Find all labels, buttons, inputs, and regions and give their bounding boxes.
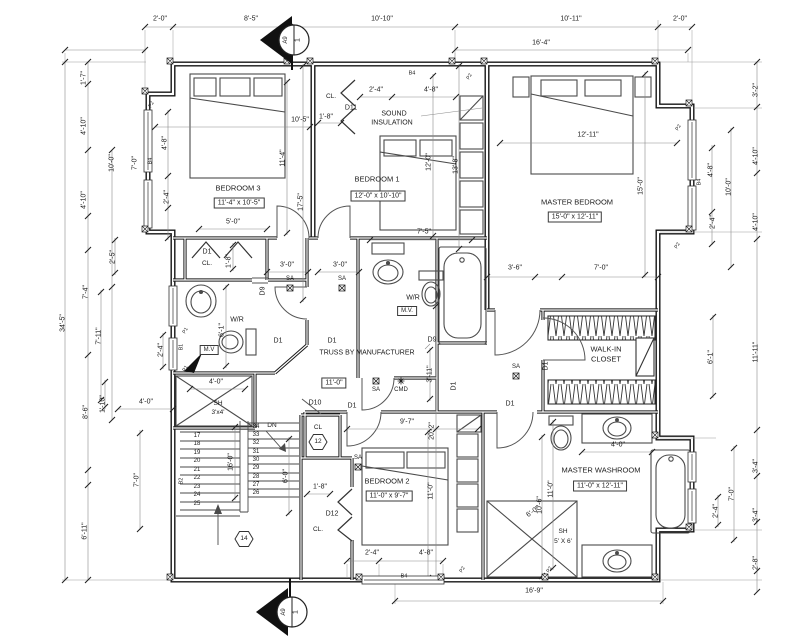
plan-label: 1'-8" — [319, 114, 333, 121]
plan-label: 17 — [194, 433, 201, 439]
plan-label: 4'-10" — [81, 117, 88, 135]
plan-label: 3'-0" — [333, 262, 347, 269]
sink-wr-left — [186, 285, 216, 317]
plan-label: 4'-10" — [753, 147, 760, 165]
sink-wr-center — [372, 243, 404, 284]
plan-label: D1 — [274, 338, 283, 345]
plan-label: 8'-6" — [83, 405, 90, 419]
plan-label: 24 — [194, 492, 201, 498]
plan-label: 7'-0" — [132, 156, 139, 170]
room-size-master-washroom: 11'-0" x 12'-11" — [573, 481, 627, 492]
note-truss: TRUSS BY MANUFACTURER — [319, 350, 414, 357]
plan-label: 12'-0" — [426, 153, 433, 171]
plan-label: 17'-5" — [298, 193, 305, 211]
plan-label: 6'-1" — [708, 350, 715, 364]
plan-label: 3'x4' — [212, 410, 225, 417]
plan-label: 4'-8" — [708, 163, 715, 177]
plan-label: 5'-0" — [226, 219, 240, 226]
plan-label: 3'-0" — [280, 262, 294, 269]
plan-label: CL — [314, 425, 322, 432]
room-label-master-washroom: MASTER WASHROOM — [562, 466, 641, 474]
plan-label: 4'-8" — [162, 136, 169, 150]
plan-label: M.V. — [397, 306, 417, 316]
plan-label: B4 — [697, 179, 703, 186]
plan-label: 7'-0" — [729, 487, 736, 501]
staircase — [176, 421, 299, 545]
plan-label: 10'-10" — [371, 16, 393, 23]
plan-label: M.V — [200, 345, 219, 355]
plan-label: 7'-5" — [417, 229, 431, 236]
plan-label: 11'-0" — [321, 378, 346, 389]
room-label-master-bedroom: MASTER BEDROOM — [541, 198, 613, 206]
plan-label: 4'-8" — [419, 550, 433, 557]
plan-label: 4'-0" — [139, 399, 153, 406]
plan-label: 11'-4" — [280, 149, 287, 166]
room-size-bedroom-3: 11'-4" x 10'-5" — [214, 198, 265, 209]
plan-label: CL. — [313, 527, 323, 534]
room-size-bedroom-2: 11'-0" x 9'-7" — [366, 491, 413, 502]
floor-plan-sheet: 2'-0"8'-5"10'-10"10'-11"2'-0"16'-4"1'-7"… — [0, 0, 800, 640]
room-label-wr-left: W/R — [230, 317, 244, 324]
plan-label: CL. — [202, 261, 212, 268]
room-label-bedroom-1: BEDROOM 1 — [354, 175, 399, 183]
plan-label: 4'-10" — [81, 191, 88, 209]
plan-label: 2'-4" — [365, 550, 379, 557]
plan-label: 7'-0" — [594, 265, 608, 272]
plan-label: 19 — [194, 450, 201, 456]
plan-label: D1 — [506, 401, 515, 408]
plan-label: 3'-2" — [753, 83, 760, 97]
plan-label: 10'-11" — [560, 16, 581, 23]
plan-label: 3'-11" — [427, 365, 434, 382]
plan-label: 7'-11" — [96, 327, 103, 344]
room-label-wr-center: W/R — [406, 295, 420, 302]
plan-label: 2'-8" — [753, 556, 760, 570]
plan-label: D1 — [451, 382, 458, 391]
plan-label: 3'-4" — [753, 508, 760, 522]
plan-label: 23 — [194, 484, 201, 490]
plan-label: 1'-10" — [100, 395, 107, 413]
bathtub-master-washroom — [651, 450, 690, 533]
plan-label: 10'-0" — [726, 178, 733, 196]
plan-label: 6'-11" — [82, 522, 89, 539]
plan-label: 12'-11" — [577, 132, 598, 139]
room-size-master-bedroom: 15'-0" x 12'-11" — [548, 212, 602, 223]
carbon-monoxide-detector-icon — [398, 378, 405, 385]
plan-label: 2'-4" — [158, 343, 165, 357]
plan-label: 2'-5" — [110, 250, 117, 264]
plan-label: B4 — [409, 71, 416, 77]
plan-label: D1 — [328, 338, 337, 345]
plan-label: 2'-0" — [153, 16, 167, 23]
plan-label: 7'-0" — [134, 473, 141, 487]
plan-label: 2'-4" — [369, 87, 383, 94]
room-size-bedroom-1: 12'-0" x 10'-10" — [351, 191, 406, 202]
plan-label: 7'-4" — [83, 285, 90, 299]
plan-label: 26 — [253, 490, 260, 496]
plan-label: D9 — [428, 337, 437, 344]
plan-label: SA — [338, 276, 346, 282]
section-marker-number-bottom: 1 — [293, 610, 300, 614]
vanity-master-washroom-top — [582, 414, 652, 443]
plan-label: 22 — [194, 475, 201, 481]
plan-label: 1'-8" — [226, 254, 233, 268]
plan-label: 4'-8" — [424, 87, 438, 94]
room-label-bedroom-2: BEDROOM 2 — [364, 477, 409, 485]
plan-label: 1'-7" — [81, 71, 88, 85]
plan-label: CMD — [394, 387, 408, 393]
plan-label: 34'-5" — [60, 314, 67, 332]
plan-label: 18 — [194, 441, 201, 447]
plan-label: 33 — [253, 432, 260, 438]
plan-label: 32 — [253, 440, 260, 446]
section-marker-number-top: 1 — [295, 38, 302, 42]
bed-master-bedroom — [513, 76, 651, 174]
plan-label: D1 — [203, 249, 212, 256]
plan-label: 34 — [253, 424, 260, 430]
plan-label: D1 — [543, 362, 550, 371]
plan-label: 25 — [194, 501, 201, 507]
plan-label: 11'-0" — [428, 482, 435, 499]
plan-label: 15'-0" — [638, 177, 645, 195]
plan-label: 12 — [314, 439, 321, 446]
plan-label: D9 — [260, 287, 267, 296]
plan-label: 6'-1" — [219, 323, 226, 337]
plan-label: 2'-0" — [673, 16, 687, 23]
plan-label: 27 — [253, 482, 260, 488]
wardrobe-bedroom-1 — [460, 96, 483, 234]
plan-label: D11 — [345, 105, 357, 112]
plan-label: B4 — [148, 158, 154, 165]
plan-label: SA — [354, 455, 362, 461]
plan-label: B1 — [180, 344, 185, 350]
plan-label: B4 — [401, 574, 408, 580]
plan-label: 3'-6" — [508, 265, 522, 272]
plan-label: 4'-0" — [209, 379, 223, 386]
plan-label: D10 — [309, 400, 322, 407]
plan-label: SA — [286, 276, 294, 282]
plan-label: 8'-5" — [244, 16, 258, 23]
plan-label: 11'-0" — [548, 480, 555, 497]
plan-label: 20 — [194, 458, 201, 464]
plan-label: SA — [512, 364, 520, 370]
plan-label: 20'-2" — [429, 422, 436, 440]
plan-label: 10'-0" — [109, 154, 116, 172]
plan-label: INSULATION — [371, 120, 413, 127]
plan-label: CL. — [326, 94, 336, 101]
plan-label: 31 — [253, 449, 260, 455]
note-sound-insulation: SOUND — [381, 111, 406, 118]
plan-label: 10'-5" — [291, 117, 309, 124]
toilet-master-washroom — [549, 416, 573, 450]
section-marker-sheet-top: A9 — [283, 36, 289, 43]
wardrobe-bedroom-2 — [457, 415, 481, 532]
plan-label: 11'-11" — [753, 342, 760, 363]
bifold-closet-doors — [192, 80, 355, 541]
room-label-bedroom-3: BEDROOM 3 — [215, 184, 260, 192]
plan-label: 16'-9" — [525, 588, 543, 595]
stair-dn-arrow-icon — [279, 443, 286, 452]
plan-label: B2 — [179, 478, 185, 485]
plan-label: D12 — [326, 511, 339, 518]
plan-label: 1'-8" — [313, 484, 327, 491]
plan-label: 16'-4" — [532, 40, 550, 47]
plan-label: 29 — [253, 465, 260, 471]
plan-label: 4'-10" — [753, 213, 760, 231]
plan-label: SA — [372, 387, 380, 393]
vanity-master-washroom-bottom — [582, 545, 652, 577]
plan-label: 2'-4" — [713, 504, 720, 518]
plan-label: 28 — [253, 474, 260, 480]
plan-label: 10'-6" — [537, 496, 544, 514]
floor-plan-drawing — [0, 0, 800, 640]
plan-label: 16'-0" — [228, 453, 235, 471]
plan-label: D1 — [348, 403, 357, 410]
interior-walls — [173, 238, 658, 580]
plan-label: 14 — [240, 536, 247, 543]
plan-label: 5' X 6' — [554, 539, 572, 546]
stair-up-arrow-icon — [214, 504, 222, 514]
plan-label: 21 — [194, 467, 201, 473]
plan-label: 13'-8" — [453, 156, 460, 174]
section-marker-bottom — [256, 578, 307, 636]
plan-label: SH — [558, 529, 567, 536]
plan-label: CLOSET — [591, 355, 621, 363]
plan-label: 6'-0" — [283, 469, 290, 483]
section-marker-sheet-bottom: A9 — [281, 608, 287, 615]
plan-label: 3'-4" — [753, 459, 760, 473]
plan-label: 2'-4" — [164, 190, 171, 204]
plan-label: 4'-0" — [611, 442, 625, 449]
plan-label: DN — [267, 423, 276, 430]
bathtub-wr-center — [439, 247, 486, 344]
plan-label: 30 — [253, 457, 260, 463]
bed-bedroom-3 — [190, 74, 285, 178]
room-label-walk-in-closet: WALK-IN — [591, 345, 622, 353]
plan-label: 2'-4" — [710, 215, 717, 229]
plan-label: 9'-7" — [400, 419, 414, 426]
plan-label: SH — [213, 401, 222, 408]
